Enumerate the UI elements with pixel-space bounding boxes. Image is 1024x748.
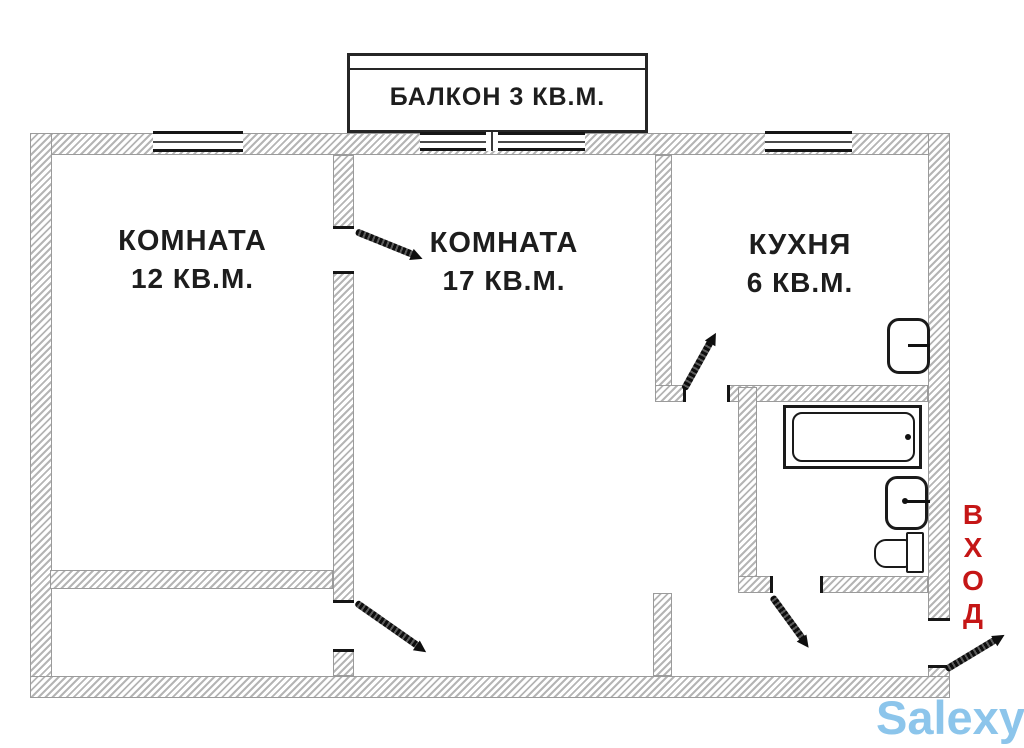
room-small-label: КОМНАТА 12 КВ.М.: [60, 222, 325, 298]
entrance-letter: Х: [955, 531, 991, 564]
wall-room-small-bottom: [50, 570, 333, 589]
window-balcony-divider: [486, 132, 498, 151]
door-opening-kitchen: [683, 385, 730, 402]
room-large-name: КОМНАТА: [373, 224, 635, 262]
toilet-tank-icon: [906, 532, 924, 573]
entrance-letter: О: [955, 564, 991, 597]
bathroom-sink-tap-icon: [906, 500, 930, 503]
kitchen-label: КУХНЯ 6 КВ.М.: [688, 226, 912, 302]
room-small-area: 12 КВ.М.: [60, 260, 325, 298]
door-leaf-kitchen-icon: [681, 340, 714, 391]
entrance-letter: Д: [955, 597, 991, 630]
room-large-area: 17 КВ.М.: [373, 262, 635, 300]
bathtub-inner-icon: [792, 412, 915, 462]
outer-wall-left: [30, 133, 52, 698]
window-room-small: [153, 131, 243, 152]
wall-bathroom-bottom: [738, 576, 928, 593]
wall-hallway-stub: [653, 593, 672, 676]
entrance-label: В Х О Д: [955, 498, 991, 630]
room-small-name: КОМНАТА: [60, 222, 325, 260]
bathroom-sink-drain-icon: [902, 498, 908, 504]
door-leaf-bathroom-icon: [769, 594, 806, 641]
entrance-letter: В: [955, 498, 991, 531]
kitchen-name: КУХНЯ: [688, 226, 912, 264]
balcony-rail-line: [350, 68, 645, 70]
outer-wall-right: [928, 133, 950, 698]
toilet-bowl-icon: [874, 539, 910, 568]
balcony-label: БАЛКОН 3 КВ.М.: [350, 83, 645, 112]
balcony-outline: БАЛКОН 3 КВ.М.: [347, 53, 648, 133]
wall-kitchen-divider: [655, 155, 672, 387]
kitchen-area: 6 КВ.М.: [688, 264, 912, 302]
door-leaf-entrance-icon: [944, 637, 997, 673]
window-balcony-left: [420, 132, 486, 151]
bathtub-drain-icon: [905, 434, 911, 440]
room-large-label: КОМНАТА 17 КВ.М.: [373, 224, 635, 300]
window-balcony-right: [498, 132, 585, 151]
floorplan-canvas: БАЛКОН 3 КВ.М. КОМНАТА 12 КВ.М.: [0, 0, 1024, 748]
watermark-logo: Salexy: [876, 690, 1024, 745]
wall-bathroom-left: [738, 387, 757, 593]
door-opening-entrance: [928, 618, 950, 668]
kitchen-sink-tap-icon: [908, 344, 930, 347]
door-leaf-corridor-icon: [354, 600, 420, 649]
door-opening-corridor: [333, 600, 354, 652]
window-kitchen: [765, 131, 852, 152]
door-opening-bathroom: [770, 576, 823, 593]
outer-wall-bottom: [30, 676, 950, 698]
door-opening-room-small: [333, 226, 354, 274]
